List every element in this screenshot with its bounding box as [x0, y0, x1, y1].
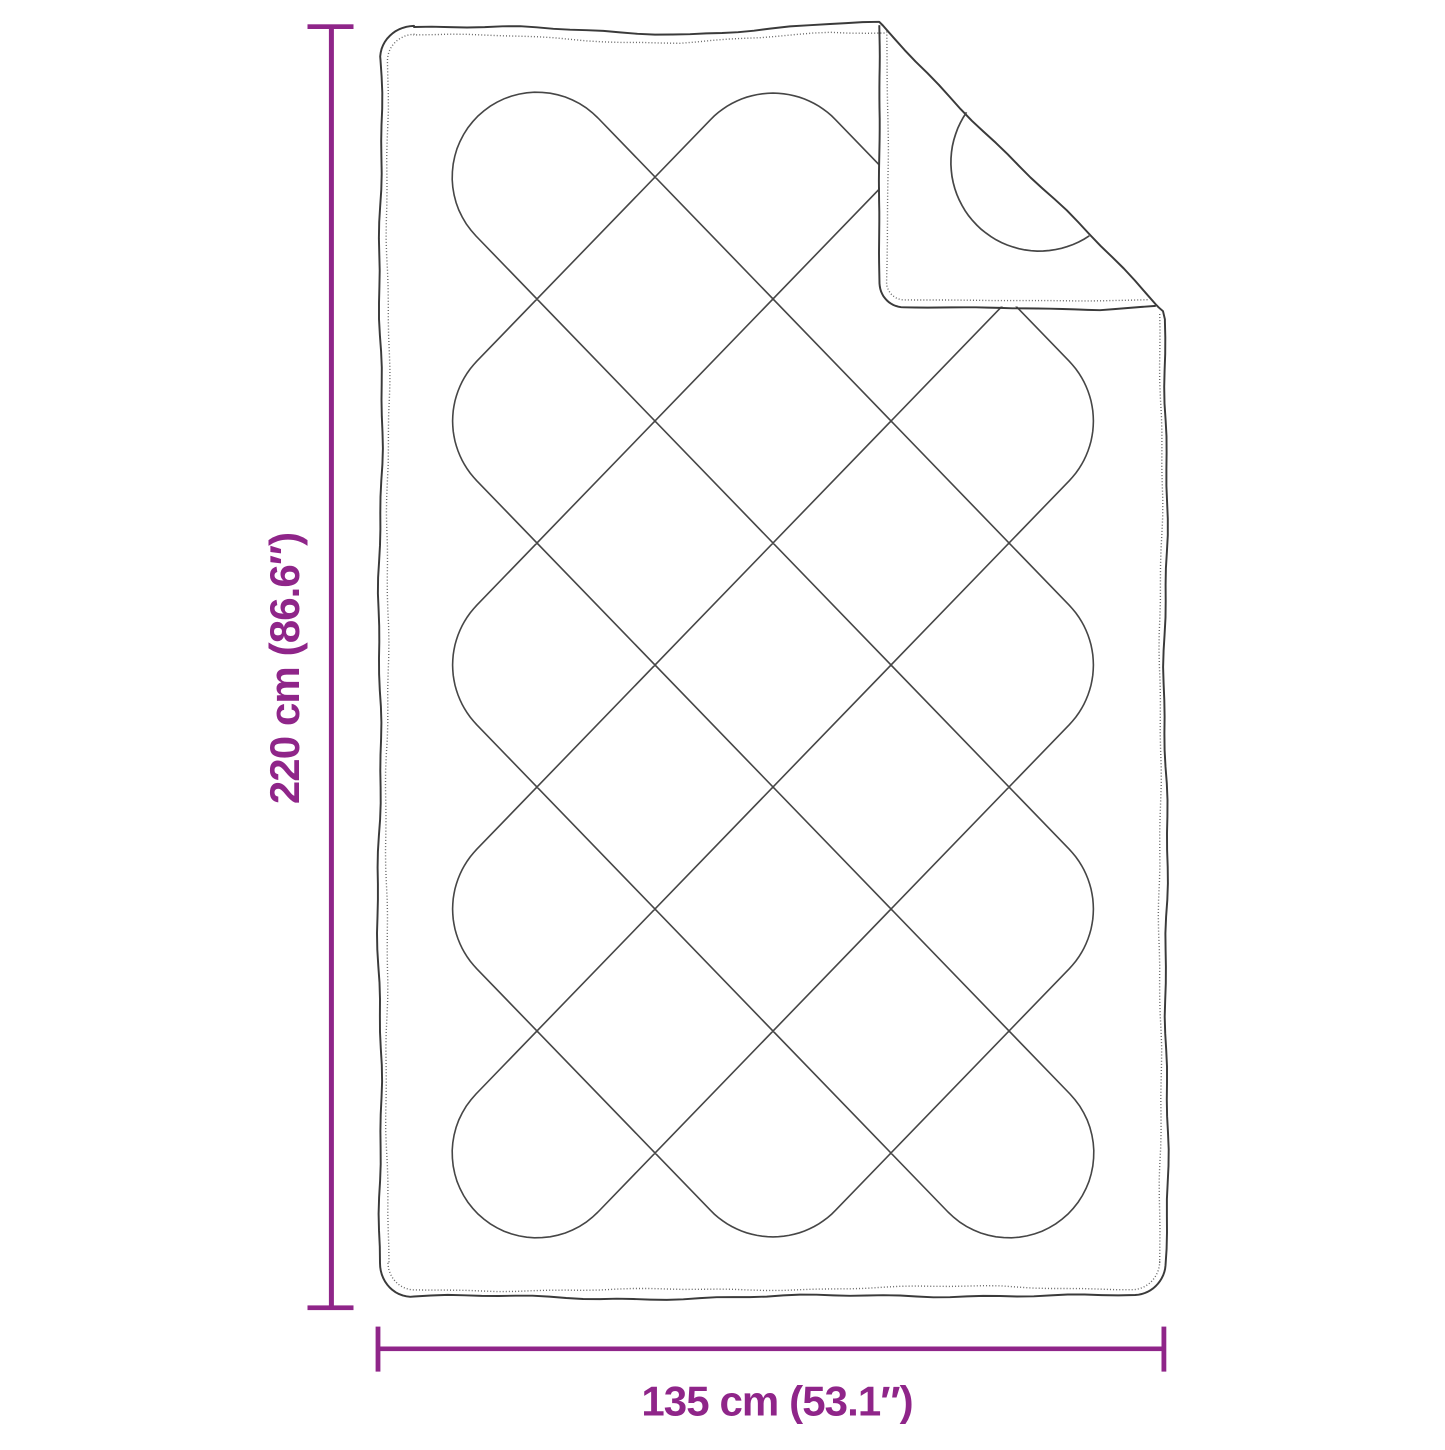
svg-text:220 cm (86.6″): 220 cm (86.6″) [261, 533, 308, 804]
svg-text:135 cm (53.1″): 135 cm (53.1″) [641, 1378, 912, 1425]
